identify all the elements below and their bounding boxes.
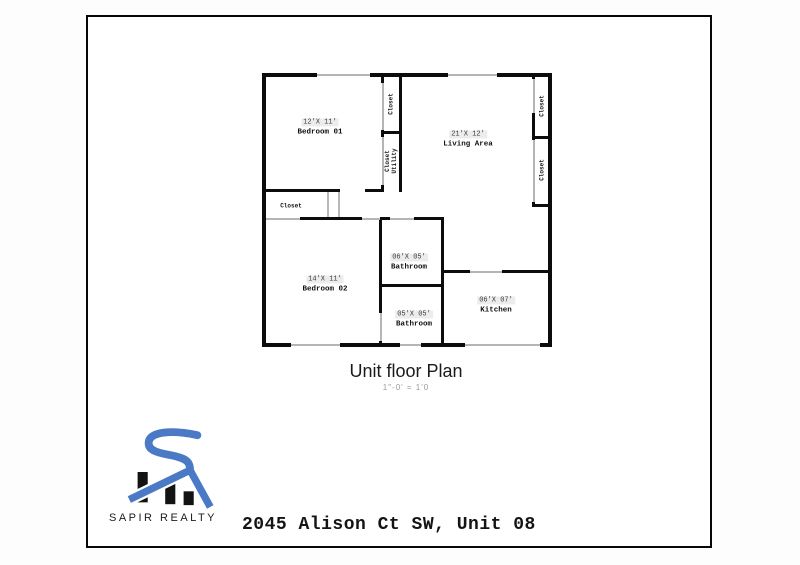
window-kitchen bbox=[465, 343, 540, 347]
door-right-closet-top bbox=[532, 79, 535, 113]
window-bathroom2 bbox=[400, 343, 421, 347]
room-label-kitchen: 06'X 07' Kitchen bbox=[477, 288, 515, 315]
room-label-bathroom1: 06'X 05' Bathroom bbox=[390, 245, 428, 272]
room-dims: 14'X 11' bbox=[306, 275, 344, 283]
door-right-closet-bottom bbox=[532, 140, 535, 202]
wall-right-closet-bottom bbox=[532, 204, 552, 207]
listing-address: 2045 Alison Ct SW, Unit 08 Atlanta, GA 3… bbox=[242, 455, 536, 565]
opening-kitchen bbox=[470, 270, 502, 273]
closet-label-utility-line: Utility bbox=[391, 148, 398, 173]
sapir-realty-logo bbox=[120, 426, 215, 518]
opening-hall bbox=[362, 217, 380, 220]
address-line-1: 2045 Alison Ct SW, Unit 08 bbox=[242, 511, 536, 539]
wall-closet-living bbox=[399, 77, 402, 192]
closet-label-left: Closet bbox=[280, 202, 302, 209]
wall-right-closet-divider bbox=[532, 136, 552, 139]
closet-label-mid-top: Closet bbox=[387, 93, 394, 115]
door-bedroom2 bbox=[266, 217, 300, 220]
room-dims: 06'X 05' bbox=[390, 253, 428, 261]
room-name: Bathroom bbox=[395, 321, 433, 330]
room-dims: 06'X 07' bbox=[477, 296, 515, 304]
room-name: Kitchen bbox=[477, 307, 515, 316]
closet-label-utility-line: Closet bbox=[384, 148, 391, 173]
closet-label-utility: Closet Utility bbox=[384, 148, 398, 173]
wall-bedroom1-bottom bbox=[365, 189, 384, 192]
room-dims: 05'X 05' bbox=[395, 310, 433, 318]
plan-title: Unit floor Plan bbox=[349, 361, 462, 382]
brand-name: SAPIR REALTY bbox=[109, 512, 217, 524]
logo-s-curve bbox=[149, 432, 198, 470]
door-leaf-hall bbox=[327, 192, 329, 217]
closet-label-right-top: Closet bbox=[538, 95, 545, 117]
room-name: Bedroom 01 bbox=[297, 129, 342, 138]
room-name: Bathroom bbox=[390, 264, 428, 273]
floor-plan: 12'X 11' Bedroom 01 21'X 12' Living Area… bbox=[258, 73, 552, 347]
window-bedroom2 bbox=[291, 343, 340, 347]
room-label-bedroom2: 14'X 11' Bedroom 02 bbox=[302, 267, 347, 294]
door-bathroom2 bbox=[379, 313, 382, 341]
wall-top bbox=[262, 73, 552, 77]
floor-plan-page: 12'X 11' Bedroom 01 21'X 12' Living Area… bbox=[0, 0, 800, 565]
door-bathroom1 bbox=[390, 217, 414, 220]
wall-bath-kitchen bbox=[441, 219, 444, 343]
window-living bbox=[448, 73, 497, 77]
wall-right bbox=[548, 73, 552, 347]
plan-scale: 1"-0' = 1'0 bbox=[383, 383, 429, 392]
room-dims: 21'X 12' bbox=[449, 130, 487, 138]
logo-bar-right bbox=[184, 491, 194, 505]
room-label-living: 21'X 12' Living Area bbox=[443, 122, 493, 149]
closet-label-right-bottom: Closet bbox=[538, 159, 545, 181]
room-name: Bedroom 02 bbox=[302, 286, 347, 295]
room-name: Living Area bbox=[443, 141, 493, 150]
door-leaf-hall bbox=[338, 192, 340, 217]
room-label-bathroom2: 05'X 05' Bathroom bbox=[395, 302, 433, 329]
room-dims: 12'X 11' bbox=[301, 118, 339, 126]
room-label-bedroom1: 12'X 11' Bedroom 01 bbox=[297, 110, 342, 137]
wall-bathroom-divider bbox=[382, 284, 441, 287]
window-bedroom1 bbox=[317, 73, 370, 77]
wall-left bbox=[262, 73, 266, 347]
door-closet-bedroom1 bbox=[381, 83, 384, 130]
wall-closet-divider bbox=[381, 131, 402, 134]
